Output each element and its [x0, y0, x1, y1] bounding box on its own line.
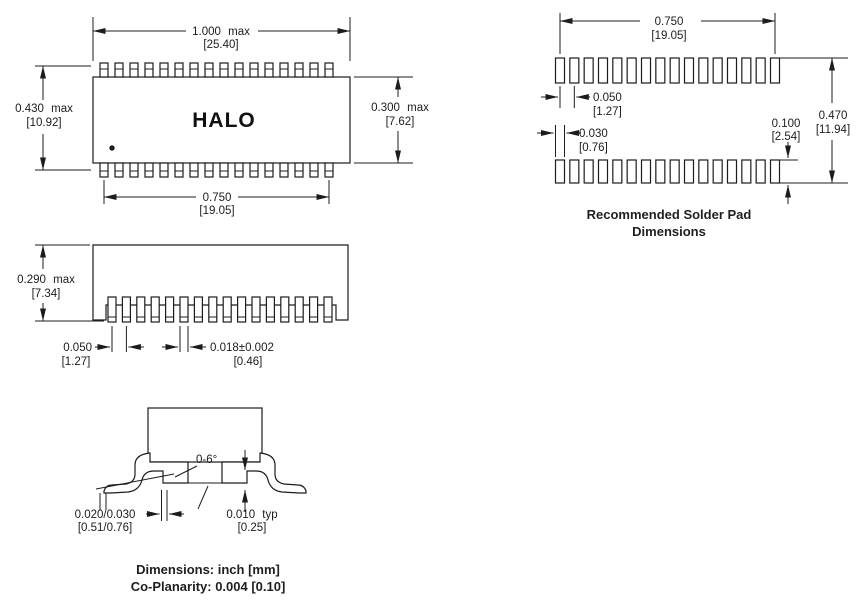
dim-pad-width-in: 0.030 [579, 128, 608, 140]
pin-lead [250, 163, 258, 177]
lead [122, 297, 130, 322]
pin-lead [295, 163, 303, 177]
drawing-canvas: HALO 1.000 max [25.40] 0.430 max [10.92]… [0, 0, 864, 606]
solder-pad [556, 58, 565, 83]
dim-overall-height-in: 0.430 max [15, 103, 73, 115]
pin-lead [100, 63, 108, 77]
pin-lead [205, 163, 213, 177]
dim-standoff-in: 0.010 typ [226, 509, 277, 521]
solder-pad [584, 58, 593, 83]
solder-pad [642, 58, 651, 83]
dim-standoff-mm: [0.25] [238, 522, 267, 534]
lead [180, 297, 188, 322]
pin-lead [145, 63, 153, 77]
lead [238, 297, 246, 322]
pin-lead [280, 63, 288, 77]
pin-lead [205, 63, 213, 77]
solder-pad [670, 58, 679, 83]
pin-lead [220, 63, 228, 77]
solder-pad [642, 160, 651, 183]
lead [310, 297, 318, 322]
solder-pad [656, 58, 665, 83]
solder-pad [570, 58, 579, 83]
top-view: HALO 1.000 max [25.40] 0.430 max [10.92]… [15, 17, 429, 217]
solder-pad [699, 160, 708, 183]
solder-pad [742, 160, 751, 183]
dim-pad-span-in: 0.750 [655, 16, 684, 28]
solder-pad [670, 160, 679, 183]
dim-pad-height-mm: [2.54] [772, 131, 801, 143]
dim-lead-angle-value: 0-6° [196, 454, 217, 466]
side-view: 0.290 max [7.34] 0.050 [1.27] 0.018±0.00… [17, 245, 348, 368]
solder-pad [656, 160, 665, 183]
pin-lead [175, 163, 183, 177]
solder-pad [570, 160, 579, 183]
dim-pad-pitch-mm: [1.27] [593, 106, 622, 118]
pin-lead [235, 163, 243, 177]
dim-pad-width [537, 125, 581, 157]
pad-view-caption-line1: Recommended Solder Pad [587, 207, 752, 222]
dim-body-length-mm: [25.40] [203, 39, 238, 51]
dim-body-width-in: 0.300 max [371, 102, 429, 114]
solder-pad [627, 58, 636, 83]
solder-pad [685, 160, 694, 183]
solder-pad [713, 58, 722, 83]
solder-pad [584, 160, 593, 183]
dim-side-height-mm: [7.34] [32, 288, 61, 300]
dim-body-width-mm: [7.62] [386, 116, 415, 128]
solder-pad [756, 160, 765, 183]
pin-lead [235, 63, 243, 77]
lead [151, 297, 159, 322]
pin-lead [115, 63, 123, 77]
pin-lead [280, 163, 288, 177]
pin-lead [295, 63, 303, 77]
solder-pad [756, 58, 765, 83]
dim-foot-length-mm: [0.51/0.76] [78, 522, 132, 534]
solder-pad-view: 0.750 [19.05] 0.050 [1.27] 0.030 [0.76] … [537, 13, 850, 239]
dim-lead-width-mm: [0.46] [234, 356, 263, 368]
pad-view-caption-line2: Dimensions [632, 224, 706, 239]
dim-pad-pitch-in: 0.050 [593, 92, 622, 104]
solder-pad [556, 160, 565, 183]
pin-lead [325, 63, 333, 77]
dim-side-height-in: 0.290 max [17, 274, 75, 286]
dim-pad-overall-in: 0.470 [819, 110, 848, 122]
dim-pad-span-mm: [19.05] [651, 30, 686, 42]
solder-pad [685, 58, 694, 83]
footer-notes: Dimensions: inch [mm] Co-Planarity: 0.00… [131, 562, 286, 594]
solder-pad [599, 58, 608, 83]
solder-pad [627, 160, 636, 183]
dim-lead-pitch-mm: [1.27] [62, 356, 91, 368]
pin-lead [310, 163, 318, 177]
dim-pad-width-mm: [0.76] [579, 142, 608, 154]
pin-lead [265, 63, 273, 77]
end-view: 0-6° 0.020/0.030 [0.51/0.76] 0.010 typ [… [75, 408, 306, 534]
solder-pad [771, 160, 780, 183]
pin-lead [310, 63, 318, 77]
pin-lead [145, 163, 153, 177]
pin-lead [130, 163, 138, 177]
pin-lead [325, 163, 333, 177]
pin1-marker-dot [109, 145, 114, 150]
dim-lead-width [162, 326, 206, 352]
lead [194, 297, 202, 322]
mechanical-drawing-page: HALO 1.000 max [25.40] 0.430 max [10.92]… [0, 0, 864, 606]
solder-pad [599, 160, 608, 183]
pin-lead [160, 163, 168, 177]
lead [166, 297, 174, 322]
solder-pad [613, 160, 622, 183]
lead [209, 297, 217, 322]
note-units: Dimensions: inch [mm] [136, 562, 280, 577]
pin-lead [100, 163, 108, 177]
dim-body-length-in: 1.000 max [192, 26, 250, 38]
dim-foot-length-in: 0.020/0.030 [75, 509, 136, 521]
lead [137, 297, 145, 322]
pin-lead [190, 63, 198, 77]
solder-pad [613, 58, 622, 83]
brand-label: HALO [192, 109, 256, 132]
note-coplanarity: Co-Planarity: 0.004 [0.10] [131, 579, 286, 594]
solder-pad [728, 58, 737, 83]
pin-lead [130, 63, 138, 77]
dim-pad-overall-mm: [11.94] [816, 124, 850, 136]
dim-lead-pitch-in: 0.050 [63, 342, 92, 354]
dim-lead-pitch [95, 326, 144, 352]
lead [266, 297, 274, 322]
dim-pin-span-mm: [19.05] [199, 205, 234, 217]
pin-lead [115, 163, 123, 177]
lead [324, 297, 332, 322]
dim-pin-span-in: 0.750 [203, 192, 232, 204]
dim-pad-height [779, 142, 798, 204]
lead [252, 297, 260, 322]
solder-pad [742, 58, 751, 83]
solder-pad [699, 58, 708, 83]
lead [223, 297, 231, 322]
lead [281, 297, 289, 322]
dim-pad-pitch [541, 86, 590, 108]
dim-pad-height-in: 0.100 [772, 118, 801, 130]
pad-rows [556, 58, 780, 183]
solder-pad [771, 58, 780, 83]
pin-lead [175, 63, 183, 77]
lead [108, 297, 116, 322]
pin-lead [265, 163, 273, 177]
pin-lead [250, 63, 258, 77]
pin-lead [190, 163, 198, 177]
pin-lead [160, 63, 168, 77]
dim-overall-height-mm: [10.92] [26, 117, 61, 129]
solder-pad [713, 160, 722, 183]
pin-lead [220, 163, 228, 177]
lead [295, 297, 303, 322]
dim-lead-width-in: 0.018±0.002 [210, 342, 274, 354]
solder-pad [728, 160, 737, 183]
